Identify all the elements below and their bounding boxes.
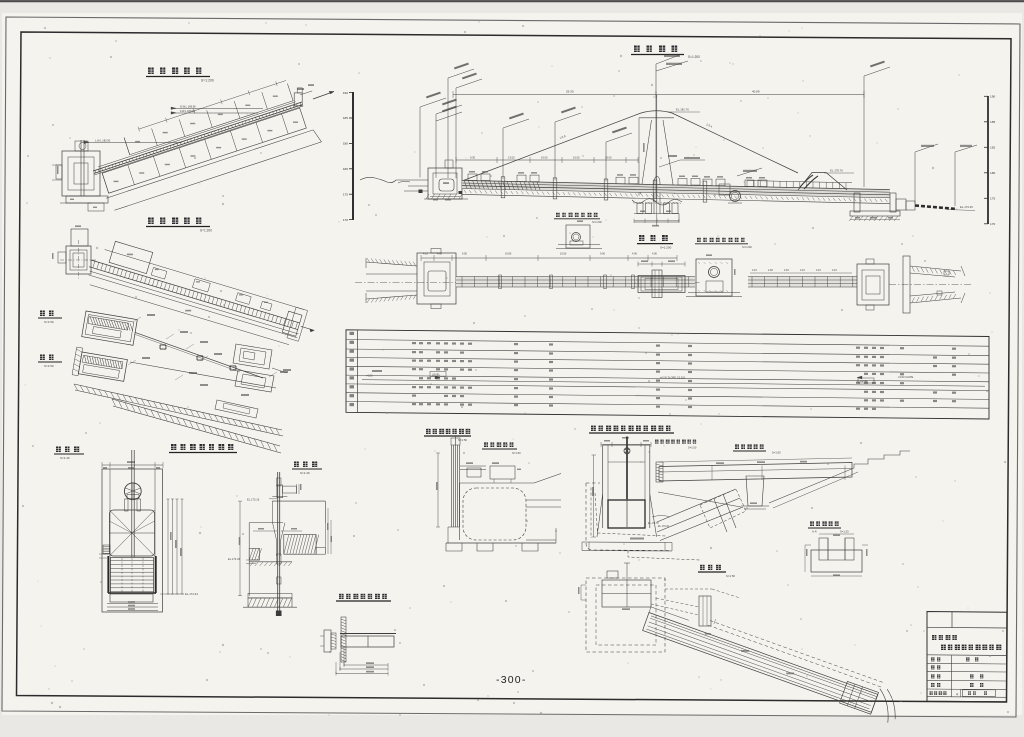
svg-text:4: 4 [956,692,958,696]
svg-text:EL.178.76: EL.178.76 [830,169,843,173]
svg-text:9.30: 9.30 [470,156,476,160]
svg-text:F.W.L 189.15: F.W.L 189.15 [180,109,196,113]
svg-text:4.90: 4.90 [652,253,657,256]
svg-text:19.80: 19.80 [505,253,512,256]
svg-text:S=1:50: S=1:50 [688,446,697,450]
svg-text:S=1:200: S=1:200 [592,220,602,224]
svg-text:i=1/30: i=1/30 [366,375,373,378]
svg-text:180: 180 [343,167,348,171]
svg-text:16.00: 16.00 [573,156,580,160]
svg-text:S=1:50: S=1:50 [44,320,54,324]
svg-text:S=1:20: S=1:20 [840,530,849,534]
svg-text:16.00: 16.00 [541,156,548,160]
svg-text:190: 190 [343,91,348,95]
svg-text:S=1:200: S=1:200 [742,245,752,249]
svg-text:S=1:200: S=1:200 [660,246,672,250]
svg-text:S=1:40: S=1:40 [60,456,70,460]
svg-text:19.60: 19.60 [560,253,567,256]
svg-text:2.43: 2.43 [752,269,757,272]
svg-text:S=1:50: S=1:50 [772,451,781,455]
svg-text:EL.176.76: EL.176.76 [648,523,659,525]
svg-text:EL.175.16: EL.175.16 [247,498,260,502]
svg-text:S=1:50: S=1:50 [44,364,54,368]
svg-text:-300-: -300- [496,674,527,686]
svg-text:2.63: 2.63 [784,269,789,272]
svg-text:EL.173.25: EL.173.25 [960,205,973,209]
svg-text:2.43: 2.43 [832,269,837,272]
svg-text:29.30: 29.30 [566,90,574,94]
svg-text:2.43: 2.43 [816,269,821,272]
svg-text:170: 170 [343,218,348,222]
svg-text:9.90: 9.90 [462,253,467,256]
svg-text:40.89: 40.89 [752,90,760,94]
svg-text:4.90: 4.90 [632,253,637,256]
svg-text:i=1/30 SLOPE: i=1/30 SLOPE [898,376,914,379]
svg-text:S=1:200: S=1:200 [688,55,700,59]
svg-text:180: 180 [343,142,348,146]
svg-text:S=1:50: S=1:50 [512,451,521,455]
svg-text:A-A': A-A' [812,530,817,534]
svg-text:S=1:50: S=1:50 [458,438,467,442]
svg-text:2.48: 2.48 [768,269,773,272]
svg-text:190: 190 [990,95,995,99]
svg-text:i=1/30 SLOPE 1/2.333: i=1/30 SLOPE 1/2.333 [660,377,686,380]
svg-text:N.W.L 189.96: N.W.L 189.96 [180,105,196,109]
svg-text:185: 185 [343,116,348,120]
svg-text:S=1:40: S=1:40 [300,471,310,475]
svg-text:175: 175 [343,192,348,196]
svg-text:170: 170 [990,222,995,226]
svg-text:S=1:50: S=1:50 [726,574,735,578]
svg-text:185: 185 [990,120,995,124]
svg-text:2.43: 2.43 [800,269,805,272]
svg-text:180: 180 [990,171,995,175]
svg-text:EL.181.76: EL.181.76 [676,108,689,112]
svg-text:LEVEL: LEVEL [860,379,869,383]
svg-text:EL.174.34: EL.174.34 [185,592,198,596]
svg-text:9.90: 9.90 [600,253,605,256]
svg-text:L.W.L 182.90: L.W.L 182.90 [95,139,111,143]
svg-text:S=1:200: S=1:200 [200,229,212,233]
svg-text:EL.173.34: EL.173.34 [228,557,240,561]
svg-text:175: 175 [990,197,995,201]
svg-text:LEVEL: LEVEL [432,373,441,377]
svg-text:182: 182 [990,146,995,150]
svg-text:S=1:200: S=1:200 [201,79,214,83]
svg-text:13.00: 13.00 [508,156,515,160]
